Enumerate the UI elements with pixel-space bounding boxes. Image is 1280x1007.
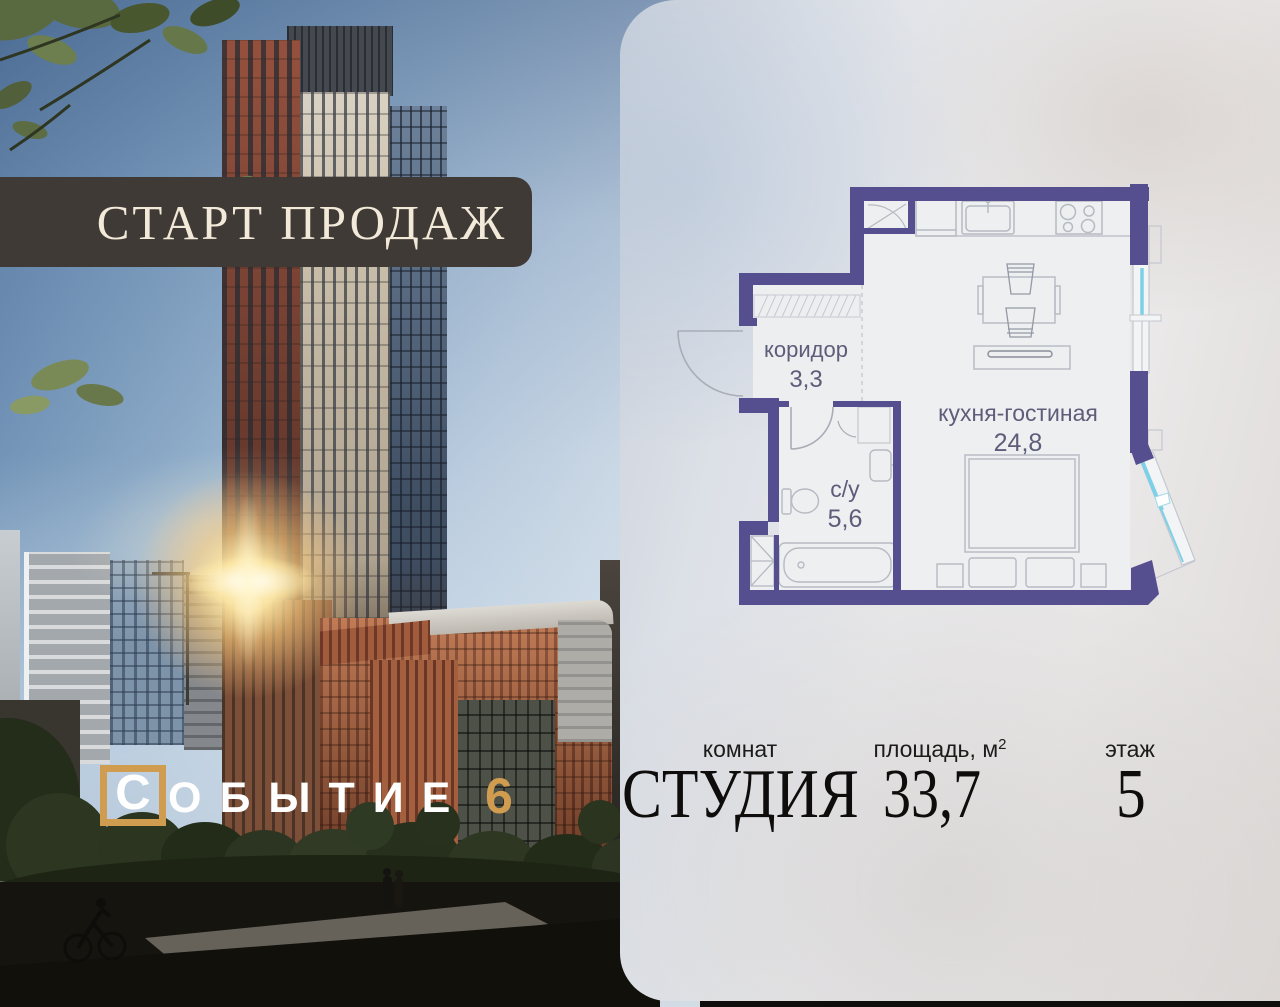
svg-text:кухня-гостиная: кухня-гостиная (938, 400, 1098, 426)
svg-text:с/у: с/у (830, 476, 860, 502)
svg-text:24,8: 24,8 (994, 429, 1043, 457)
svg-text:5,6: 5,6 (828, 505, 863, 533)
svg-text:3,3: 3,3 (789, 366, 822, 393)
svg-text:коридор: коридор (764, 337, 848, 362)
